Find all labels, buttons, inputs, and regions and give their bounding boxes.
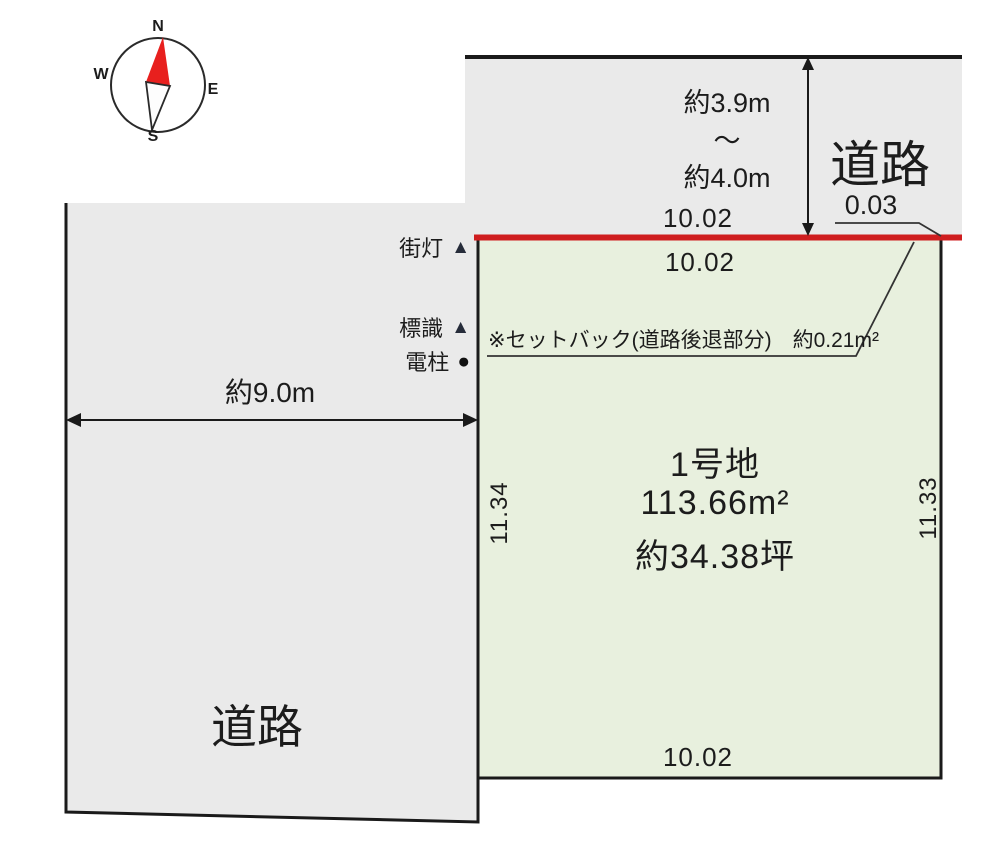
sign-triangle-icon: ▲ — [451, 318, 470, 337]
legend-item-streetlight: 街灯 ▲ — [370, 234, 470, 260]
plot-area-tsubo: 約34.38坪 — [515, 529, 915, 578]
legend-item-sign: 標識 ▲ — [370, 314, 470, 340]
left-road-label: 道路 — [157, 691, 357, 757]
road-width-min: 約3.9m — [627, 81, 827, 120]
top-road-label: 道路 — [780, 125, 980, 197]
compass-w-label: W — [89, 66, 113, 84]
compass-e-label: E — [201, 81, 225, 99]
setback-red-line — [474, 235, 962, 241]
plot-name: 1号地 — [515, 437, 915, 486]
compass-n-label: N — [146, 18, 170, 36]
sign-label: 標識 — [399, 311, 443, 343]
frontage-dimension-bottom: 10.02 — [598, 742, 798, 773]
top-road-upper-border — [465, 55, 962, 59]
offset-dimension: 0.03 — [771, 190, 971, 221]
setback-note: ※セットバック(道路後退部分) 約0.21m² — [488, 324, 879, 354]
land-plot-diagram: N W E S 約3.9m ～ 約4.0m 道路 0.03 10.02 10.0… — [0, 0, 1000, 843]
streetlight-label: 街灯 — [399, 231, 443, 263]
west-road-width: 約9.0m — [170, 371, 370, 411]
frontage-dimension-inner: 10.02 — [600, 247, 800, 278]
utility-pole-label: 電柱 — [405, 345, 449, 377]
streetlight-triangle-icon: ▲ — [451, 238, 470, 257]
compass-rose — [111, 37, 205, 132]
compass-needle-south — [146, 82, 170, 130]
legend-item-utility-pole: 電柱 ● — [370, 348, 470, 374]
compass-needle-north — [146, 37, 170, 86]
compass-s-label: S — [141, 128, 165, 146]
side-dimension-right: 11.33 — [915, 468, 943, 548]
utility-pole-circle-icon: ● — [457, 351, 470, 372]
frontage-dimension-top: 10.02 — [598, 203, 798, 234]
side-dimension-left: 11.34 — [486, 473, 514, 553]
plot-area-m2: 113.66m² — [515, 484, 915, 523]
